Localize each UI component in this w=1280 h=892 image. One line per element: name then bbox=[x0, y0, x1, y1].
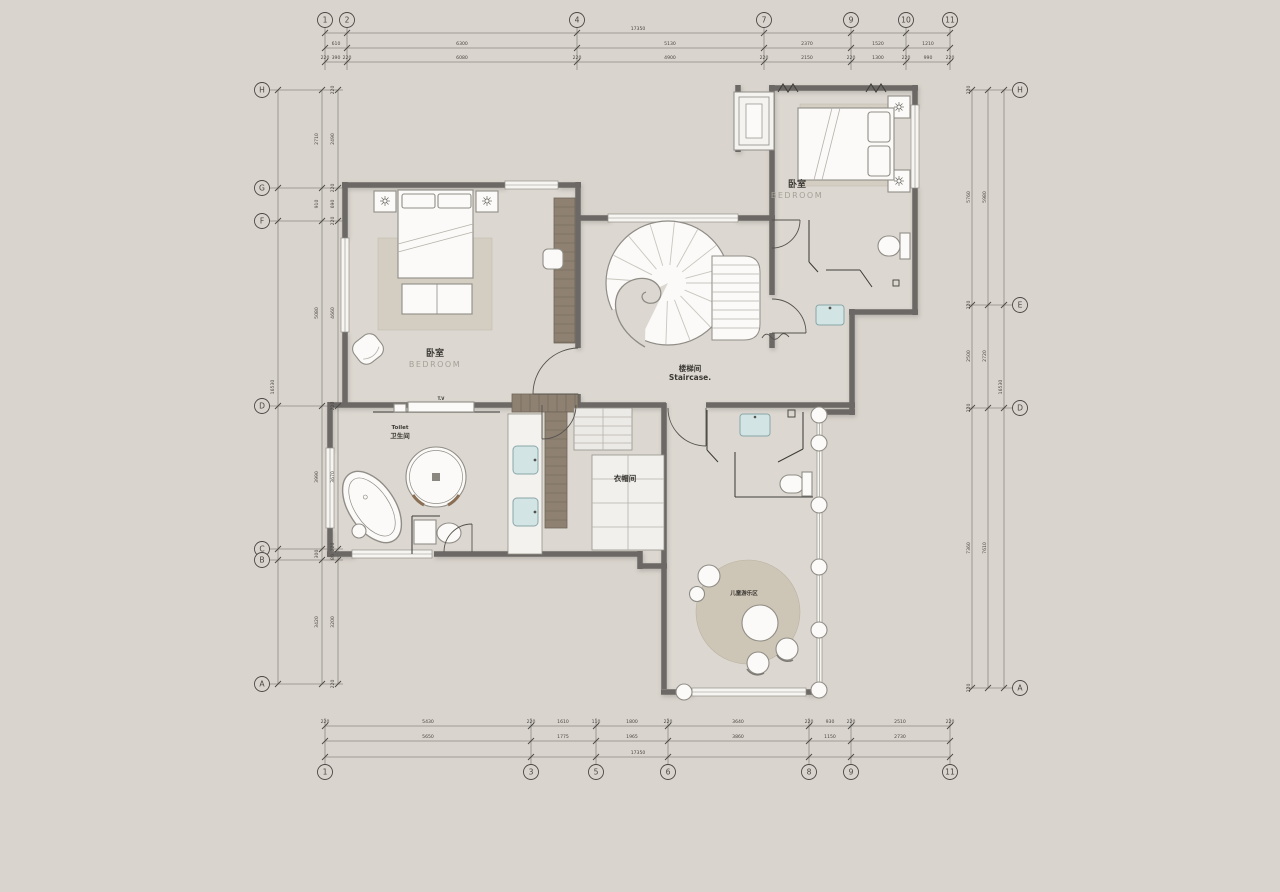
dimension-text: 3640 bbox=[732, 719, 744, 725]
dimension-text: 220 bbox=[966, 301, 972, 310]
grid-bubble: 1 bbox=[318, 765, 333, 780]
dimension-text: 1210 bbox=[922, 41, 934, 47]
dimension-text: 2370 bbox=[801, 41, 813, 47]
pillow bbox=[868, 112, 890, 142]
dimension-text: 5430 bbox=[422, 719, 434, 725]
grid-bubble: H bbox=[255, 83, 270, 98]
toilet-label-cn: 卫生间 bbox=[390, 431, 410, 440]
dimension-text: 990 bbox=[924, 55, 933, 61]
dimension-text: 1610 bbox=[557, 719, 569, 725]
toilet-bowl bbox=[878, 236, 900, 256]
dimension-text: 2490 bbox=[330, 133, 336, 145]
dimension-text: 5980 bbox=[982, 191, 988, 203]
toilet-tank bbox=[414, 520, 436, 544]
svg-text:7: 7 bbox=[762, 16, 767, 25]
svg-text:G: G bbox=[259, 184, 265, 193]
grid-bubble: F bbox=[255, 214, 270, 229]
pillow bbox=[438, 194, 471, 208]
dimension-text: 220 bbox=[330, 680, 336, 689]
grid-bubble: 5 bbox=[589, 765, 604, 780]
dimension-text: 2510 bbox=[894, 719, 906, 725]
dimension-text: 690 bbox=[330, 200, 336, 209]
dimension-text: 1520 bbox=[872, 41, 884, 47]
grid-bubble: 11 bbox=[943, 765, 958, 780]
dimension-text: 220 bbox=[966, 86, 972, 95]
nightstand bbox=[374, 191, 396, 212]
bedroom-right-label-cn: 卧室 bbox=[788, 178, 806, 190]
bedroom-right-label-en: BEDROOM bbox=[771, 191, 823, 200]
play-item bbox=[690, 587, 705, 602]
grid-bubble: H bbox=[1013, 83, 1028, 98]
svg-text:6: 6 bbox=[666, 768, 671, 777]
dimension-text: 220 bbox=[343, 55, 352, 61]
svg-text:2: 2 bbox=[345, 16, 350, 25]
pillow bbox=[402, 194, 435, 208]
svg-text:1: 1 bbox=[323, 768, 328, 777]
toilet-bowl bbox=[437, 523, 461, 543]
bedroom-left-label-en: BEDROOM bbox=[409, 360, 461, 369]
closet-hatch bbox=[512, 394, 578, 412]
grid-bubble: 7 bbox=[757, 13, 772, 28]
grid-bubble: 6 bbox=[661, 765, 676, 780]
dimension-text: 5650 bbox=[422, 734, 434, 740]
floor-plan-sheet: 卧室 BEDROOM 卧室 BEDROOM 楼梯间 Staircase. 衣帽间… bbox=[0, 0, 1280, 892]
dimension-text: 220 bbox=[847, 55, 856, 61]
svg-text:A: A bbox=[259, 680, 265, 689]
svg-text:3: 3 bbox=[529, 768, 534, 777]
dimension-text: 220 bbox=[760, 55, 769, 61]
stair-straight-run bbox=[712, 256, 760, 340]
dimension-text: 1965 bbox=[626, 734, 638, 740]
grid-bubble: A bbox=[255, 677, 270, 692]
dimension-text: 7360 bbox=[966, 542, 972, 554]
dimension-text: 220 bbox=[946, 55, 955, 61]
grid-bubble: 10 bbox=[899, 13, 914, 28]
svg-text:B: B bbox=[259, 556, 264, 565]
grid-bubble: E bbox=[1013, 298, 1028, 313]
dimension-text: 220 bbox=[330, 402, 336, 411]
dimension-text: 930 bbox=[826, 719, 835, 725]
grid-bubble: D bbox=[1013, 401, 1028, 416]
kids-area-label: 儿童游乐区 bbox=[729, 589, 758, 597]
bedroom-left-label-cn: 卧室 bbox=[426, 347, 444, 359]
dimension-text: 5760 bbox=[966, 191, 972, 203]
dimension-text: 220 bbox=[805, 719, 814, 725]
nightstand bbox=[476, 191, 498, 212]
play-table bbox=[742, 605, 778, 641]
dimension-text: 220 bbox=[966, 404, 972, 413]
dimension-text: 5130 bbox=[664, 41, 676, 47]
dimension-text: 220 bbox=[847, 719, 856, 725]
tv-label: T.V bbox=[438, 396, 446, 401]
tv-console-side bbox=[394, 404, 406, 412]
grid-bubble: D bbox=[255, 399, 270, 414]
cloakroom-label: 衣帽间 bbox=[614, 473, 637, 483]
dimension-text: 3860 bbox=[732, 734, 744, 740]
grid-bubble: 9 bbox=[844, 765, 859, 780]
dimension-text: 110 bbox=[592, 719, 601, 725]
svg-text:11: 11 bbox=[945, 768, 955, 777]
svg-text:5: 5 bbox=[594, 768, 599, 777]
dimension-text: 4900 bbox=[664, 55, 676, 61]
dimension-text: 610 bbox=[332, 41, 341, 47]
dimension-text: 2710 bbox=[314, 133, 320, 145]
tv-console bbox=[408, 402, 474, 412]
dimension-text: 80 bbox=[330, 554, 336, 560]
dimension-text: 3420 bbox=[314, 616, 320, 628]
grid-bubble: 11 bbox=[943, 13, 958, 28]
closet-hatch bbox=[554, 198, 575, 343]
bedroom-right-furniture bbox=[798, 96, 910, 192]
stool bbox=[776, 638, 798, 660]
svg-text:9: 9 bbox=[849, 768, 854, 777]
pillow bbox=[868, 146, 890, 176]
dimension-text: 3200 bbox=[330, 616, 336, 628]
dimension-text: 220 bbox=[330, 86, 336, 95]
grid-bubble: 3 bbox=[524, 765, 539, 780]
dimension-text: 390 bbox=[332, 55, 341, 61]
dimension-text: 2500 bbox=[966, 350, 972, 362]
bath-faucet bbox=[352, 524, 366, 538]
dimension-text: 4660 bbox=[330, 307, 336, 319]
svg-text:1: 1 bbox=[323, 16, 328, 25]
svg-text:F: F bbox=[260, 217, 264, 226]
dimension-text: 5080 bbox=[314, 307, 320, 319]
dimension-text: 1800 bbox=[626, 719, 638, 725]
svg-text:H: H bbox=[259, 86, 265, 95]
dimension-text: 300 bbox=[314, 550, 320, 559]
dimension-text: 2720 bbox=[982, 350, 988, 362]
dimension-text: 16530 bbox=[270, 380, 276, 395]
dimension-text: 16530 bbox=[998, 380, 1004, 395]
bay-window bbox=[734, 92, 774, 150]
vanity bbox=[508, 414, 542, 554]
svg-text:10: 10 bbox=[901, 16, 911, 25]
staircase-label-en: Staircase. bbox=[669, 373, 711, 382]
dimension-text: 1775 bbox=[557, 734, 569, 740]
grid-bubble: G bbox=[255, 181, 270, 196]
dimension-text: 220 bbox=[527, 719, 536, 725]
dimension-text: 2730 bbox=[894, 734, 906, 740]
dimension-text: 6300 bbox=[456, 41, 468, 47]
grid-bubble: 8 bbox=[802, 765, 817, 780]
ottoman bbox=[543, 249, 563, 269]
dimension-text: 7610 bbox=[982, 542, 988, 554]
stool bbox=[747, 652, 769, 674]
dimension-text: 220 bbox=[946, 719, 955, 725]
toilet-tank bbox=[802, 472, 812, 496]
svg-text:4: 4 bbox=[575, 16, 580, 25]
play-item bbox=[698, 565, 720, 587]
svg-text:9: 9 bbox=[849, 16, 854, 25]
svg-text:E: E bbox=[1018, 301, 1023, 310]
svg-text:8: 8 bbox=[807, 768, 812, 777]
dimension-text: 220 bbox=[321, 55, 330, 61]
dimension-text: 6080 bbox=[456, 55, 468, 61]
dimension-text: 17350 bbox=[631, 26, 646, 32]
toilet-bowl bbox=[780, 475, 804, 493]
svg-text:D: D bbox=[259, 402, 265, 411]
dimension-text: 3990 bbox=[314, 471, 320, 483]
dimension-text: 2150 bbox=[801, 55, 813, 61]
grid-bubble: 1 bbox=[318, 13, 333, 28]
grid-bubble: 9 bbox=[844, 13, 859, 28]
dimension-text: 17350 bbox=[631, 750, 646, 756]
closet-hatch bbox=[545, 412, 567, 528]
dimension-text: 1150 bbox=[824, 734, 836, 740]
dimension-text: 220 bbox=[330, 184, 336, 193]
dimension-text: 220 bbox=[966, 684, 972, 693]
dimension-text: 910 bbox=[314, 200, 320, 209]
svg-text:D: D bbox=[1017, 404, 1023, 413]
dimension-text: 220 bbox=[330, 543, 336, 552]
grid-bubble: 2 bbox=[340, 13, 355, 28]
dimension-text: 220 bbox=[573, 55, 582, 61]
dimension-text: 220 bbox=[664, 719, 673, 725]
svg-text:H: H bbox=[1017, 86, 1023, 95]
svg-text:11: 11 bbox=[945, 16, 955, 25]
grid-bubble: B bbox=[255, 553, 270, 568]
grid-bubble: 4 bbox=[570, 13, 585, 28]
dimension-text: 1300 bbox=[872, 55, 884, 61]
dimension-text: 220 bbox=[321, 719, 330, 725]
grid-bubble: A bbox=[1013, 681, 1028, 696]
dimension-text: 3670 bbox=[330, 471, 336, 483]
svg-text:A: A bbox=[1017, 684, 1023, 693]
dimension-text: 220 bbox=[330, 217, 336, 226]
dimension-text: 220 bbox=[902, 55, 911, 61]
toilet-label-en: Toilet bbox=[392, 425, 409, 431]
staircase-label-cn: 楼梯间 bbox=[679, 363, 702, 373]
floor-plan-svg: 卧室 BEDROOM 卧室 BEDROOM 楼梯间 Staircase. 衣帽间… bbox=[0, 0, 1280, 892]
toilet-tank bbox=[900, 233, 910, 259]
